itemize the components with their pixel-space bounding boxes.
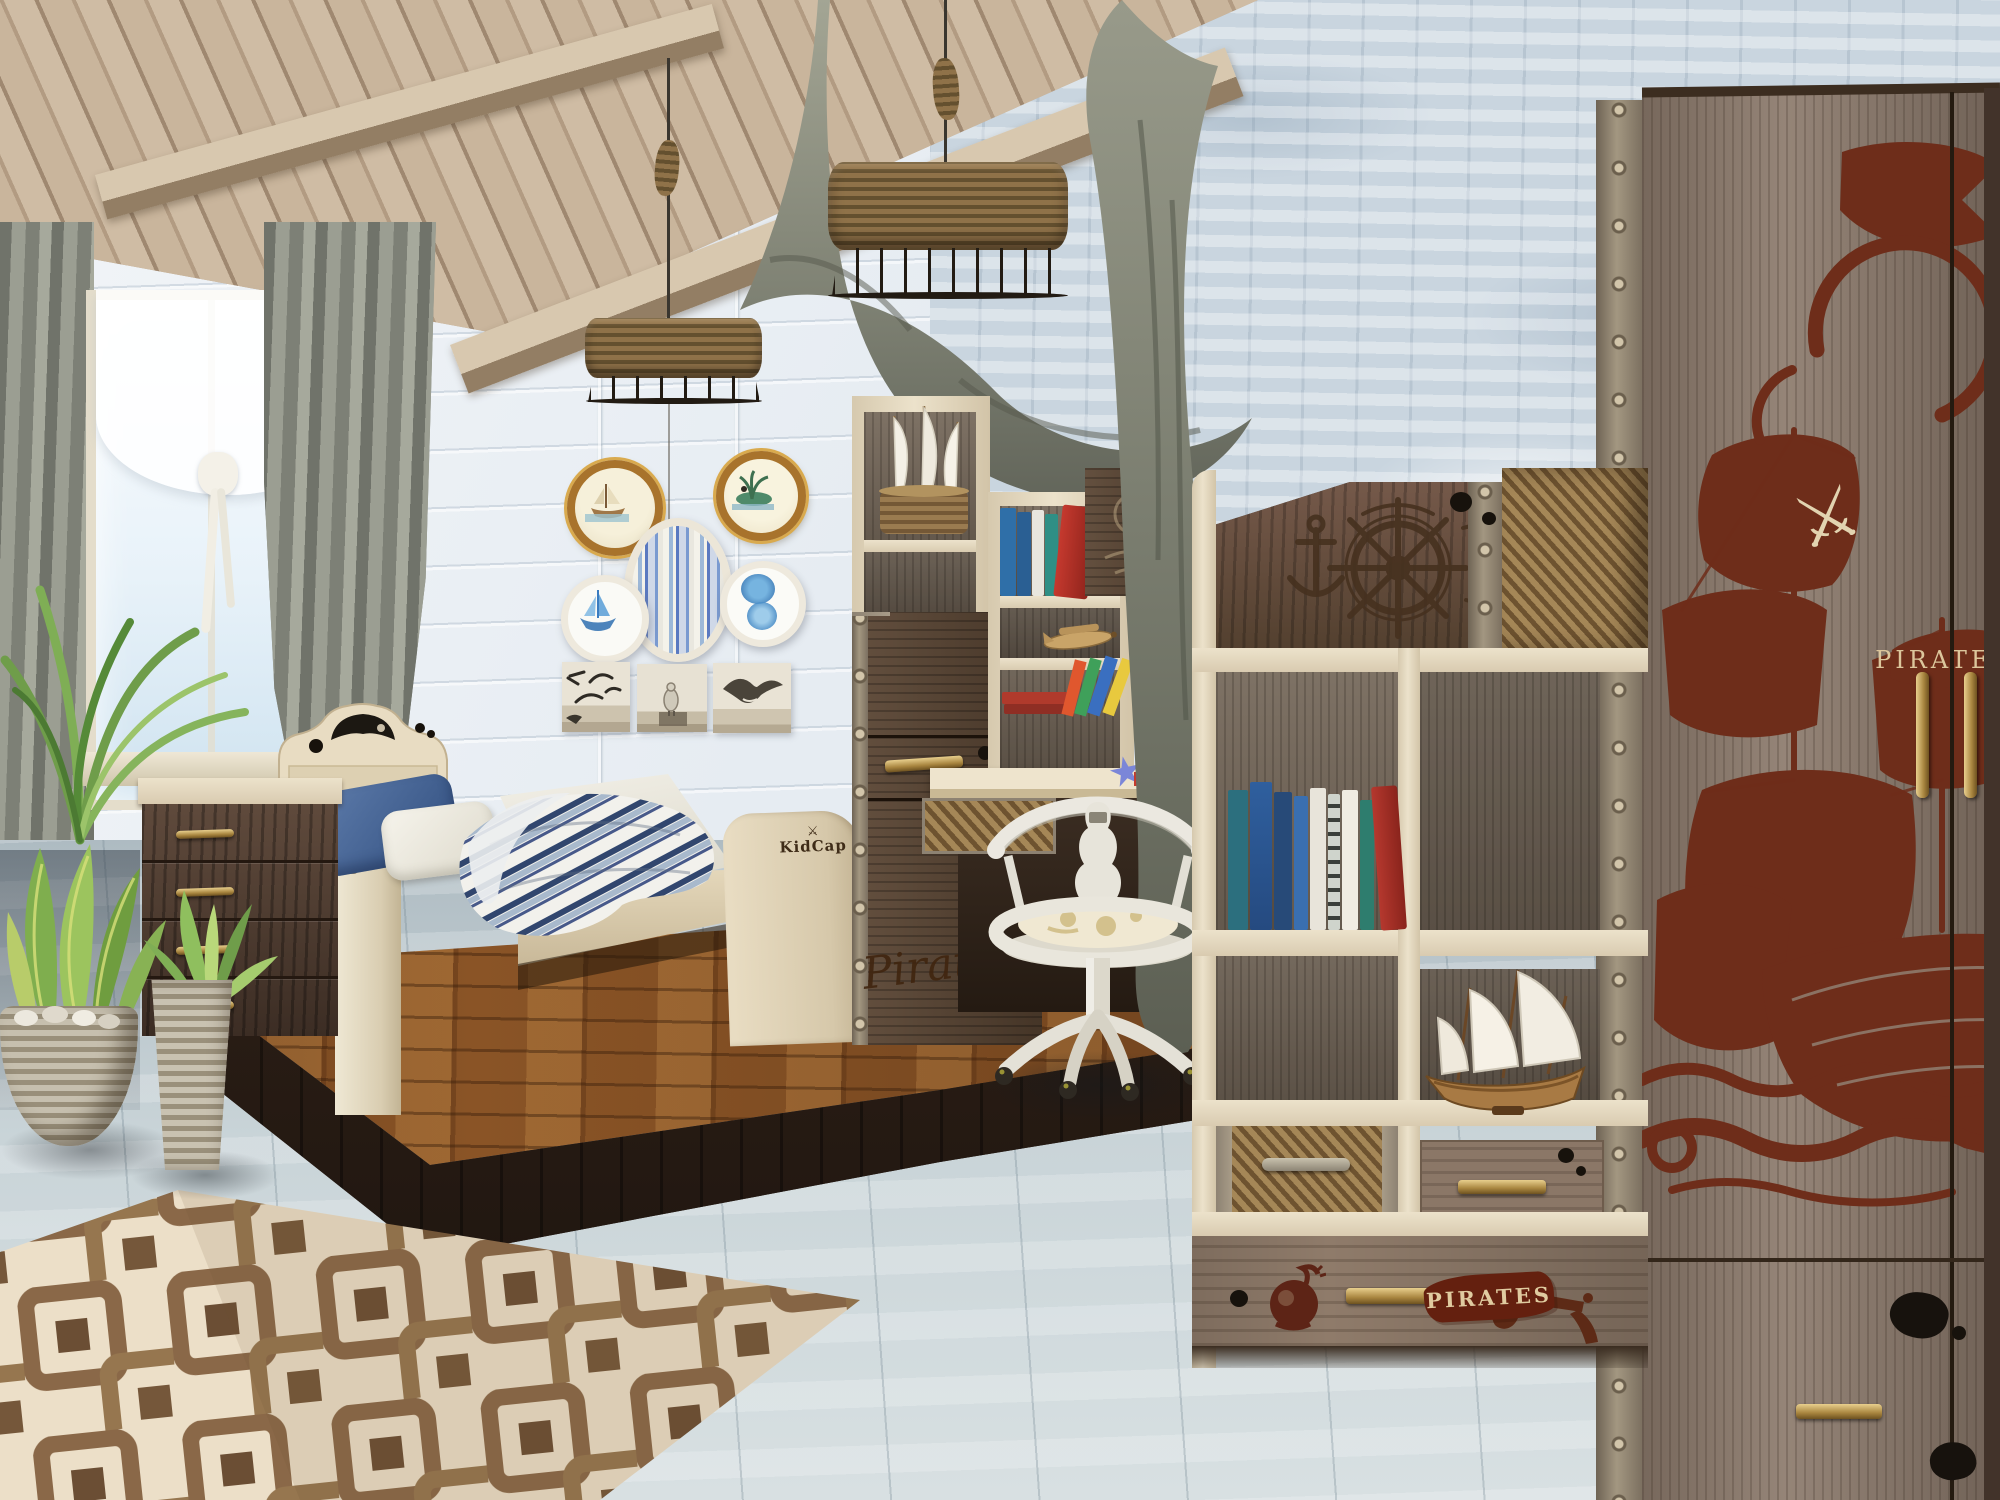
book-spine xyxy=(1328,794,1340,930)
bookcase-cell xyxy=(1216,956,1398,1100)
footboard: ⚔ KidCap xyxy=(722,810,868,1047)
book-spine xyxy=(1000,508,1016,596)
book-spine xyxy=(1017,512,1031,596)
pot-pebble xyxy=(98,1014,120,1029)
drawer-splatter xyxy=(1558,1148,1574,1163)
book-stack xyxy=(1004,704,1066,714)
chest-top xyxy=(138,778,342,804)
wardrobe-drawer-seam xyxy=(1642,1258,2000,1262)
panel-splatter xyxy=(1482,512,1496,525)
wardrobe-handle xyxy=(1916,672,1929,798)
tower-back xyxy=(864,552,976,612)
wardrobe-handle xyxy=(1964,672,1977,798)
paint-splatter xyxy=(1952,1326,1966,1340)
bedroom-scene: ⚔ KidCap Pirates xyxy=(0,0,2000,1500)
bed-logo-text: KidCap xyxy=(773,836,854,857)
bookcase-rope-corner xyxy=(1502,468,1648,650)
book-spine xyxy=(1250,782,1272,930)
swivel-chair xyxy=(978,772,1218,1116)
bookcase-base-shadow xyxy=(1192,1346,1648,1368)
watercolor-blob xyxy=(741,574,775,604)
watercolor-blob xyxy=(747,602,777,630)
wardrobe-side-dark xyxy=(1984,88,2000,1500)
book-spine xyxy=(1342,790,1358,930)
vintage-ship-art xyxy=(575,468,639,532)
basket-ship-model xyxy=(872,398,976,540)
pot-pebble xyxy=(72,1010,96,1026)
book-spine xyxy=(1032,510,1044,596)
seagull-print xyxy=(637,664,707,732)
wardrobe-drawer-handle xyxy=(1796,1404,1882,1419)
model-ship xyxy=(1408,948,1600,1124)
standing-gull-art xyxy=(637,664,707,732)
bed-logo: ⚔ KidCap xyxy=(772,824,853,857)
rope-drawer-plate xyxy=(1216,1126,1232,1212)
pendant-cage-rim xyxy=(828,292,1068,299)
small-drawer-handle xyxy=(1458,1180,1546,1194)
pendant-drum xyxy=(585,318,762,378)
seagulls-art xyxy=(562,662,630,732)
bookcase-shelf xyxy=(1192,1212,1648,1236)
book-spine xyxy=(1310,788,1326,930)
frame-blue-circles xyxy=(720,561,806,647)
pot-pebble xyxy=(14,1010,38,1026)
drawer-splatter xyxy=(1230,1290,1248,1307)
bomb-graphic xyxy=(1256,1262,1326,1334)
panel-splatter xyxy=(1450,492,1472,512)
striped-duvet xyxy=(450,785,750,955)
bookcase-cell xyxy=(1420,672,1600,945)
book-spine xyxy=(1294,796,1308,930)
drawer-splatter xyxy=(1576,1166,1586,1176)
bookcase-shelf xyxy=(1192,648,1648,672)
oval-frame-cord xyxy=(668,404,670,522)
book-stack xyxy=(1002,692,1068,704)
book-spine xyxy=(1360,800,1374,930)
pendant-drum xyxy=(828,162,1068,250)
bottom-drawer-handle xyxy=(1346,1288,1434,1304)
rope-drawer-plate xyxy=(1382,1126,1398,1212)
wardrobe-door-gap xyxy=(1950,92,1954,1500)
seagull-print xyxy=(713,663,791,733)
pendant-cage xyxy=(832,248,1064,296)
tower-shelf xyxy=(864,540,976,552)
bookcase-center-stile xyxy=(1398,648,1420,1214)
bookcase-strap xyxy=(1468,482,1502,650)
book-spine xyxy=(1228,790,1248,930)
pendant-cage-rim xyxy=(586,398,762,404)
pot-pebble xyxy=(42,1006,68,1023)
pirates-drawer-text: PIRATES xyxy=(1425,1281,1552,1313)
seagull-print xyxy=(562,662,630,732)
flying-gull-art xyxy=(713,663,791,733)
wardrobe-ship-graphic: PIRATES xyxy=(1642,140,2000,1260)
wardrobe-banner-text: PIRATES xyxy=(1875,646,2000,674)
frame-blue-ship xyxy=(561,575,649,663)
watercolor-ship-art xyxy=(568,582,628,642)
rope-drawer-handle xyxy=(1262,1158,1350,1171)
book-spine xyxy=(1274,792,1292,930)
